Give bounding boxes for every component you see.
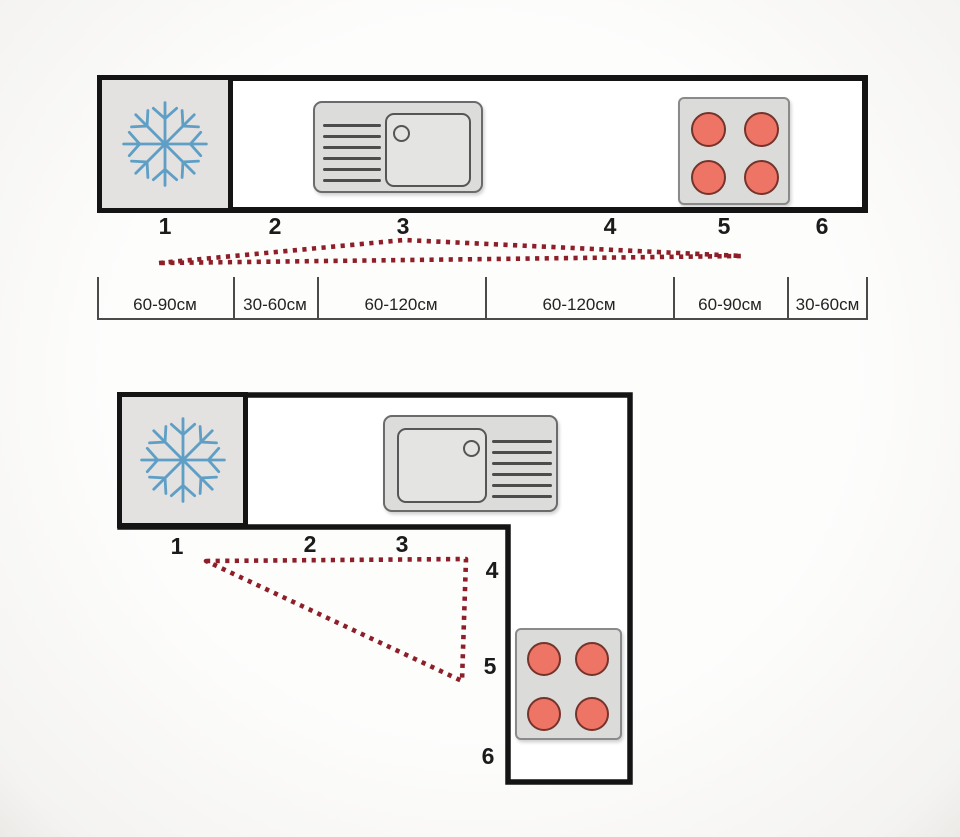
refrigerator-module [97,75,233,213]
four-burner-hob-icon [678,97,790,205]
sink-basin [397,428,487,503]
l-position-label-2: 2 [304,532,317,556]
l-position-label-3: 3 [396,532,409,556]
snowflake-icon [136,413,230,507]
burner-icon [744,160,779,195]
dimension-label-2: 30-60см [233,295,317,315]
scale-baseline [97,318,868,320]
position-label-2: 2 [269,214,282,238]
position-label-3: 3 [397,214,410,238]
drainboard-line [323,124,381,127]
l-position-label-6: 6 [482,744,495,768]
dimension-label-1: 60-90см [97,295,233,315]
drainboard-line [492,495,552,498]
burner-icon [575,642,609,676]
position-label-1: 1 [159,214,172,238]
burner-icon [691,112,726,147]
position-label-6: 6 [816,214,829,238]
dimension-label-4: 60-120см [485,295,673,315]
sink-basin [385,113,471,187]
l-position-label-4: 4 [486,558,499,582]
refrigerator-module-l [117,392,248,528]
position-label-5: 5 [718,214,731,238]
drainboard-line [323,157,381,160]
snowflake-icon [118,97,212,191]
drainboard-line [323,135,381,138]
drain-hole-icon [463,440,480,457]
drainboard-line [492,440,552,443]
burner-icon [527,697,561,731]
work-triangle-l-shaped [206,559,466,681]
dimension-label-3: 60-120см [317,295,485,315]
burner-icon [691,160,726,195]
drainboard-line [323,179,381,182]
drainboard-line [492,484,552,487]
kitchen-work-triangle-diagram: 1 2 3 4 5 6 60-90см 30-60см 60-120см 60-… [0,0,960,837]
dimension-label-6: 30-60см [787,295,868,315]
l-position-label-5: 5 [484,654,497,678]
drain-hole-icon [393,125,410,142]
burner-icon [575,697,609,731]
drainboard-line [492,451,552,454]
l-position-label-1: 1 [171,534,184,558]
burner-icon [744,112,779,147]
burner-icon [527,642,561,676]
drainboard-line [492,473,552,476]
drainboard-line [492,462,552,465]
position-label-4: 4 [604,214,617,238]
sink-with-drainboard-icon [313,101,483,193]
drainboard-line [323,146,381,149]
four-burner-hob-icon-l [515,628,622,740]
drainboard-line [323,168,381,171]
sink-with-drainboard-icon-l [383,415,558,512]
dimension-label-5: 60-90см [673,295,787,315]
work-triangle-linear [159,240,742,263]
